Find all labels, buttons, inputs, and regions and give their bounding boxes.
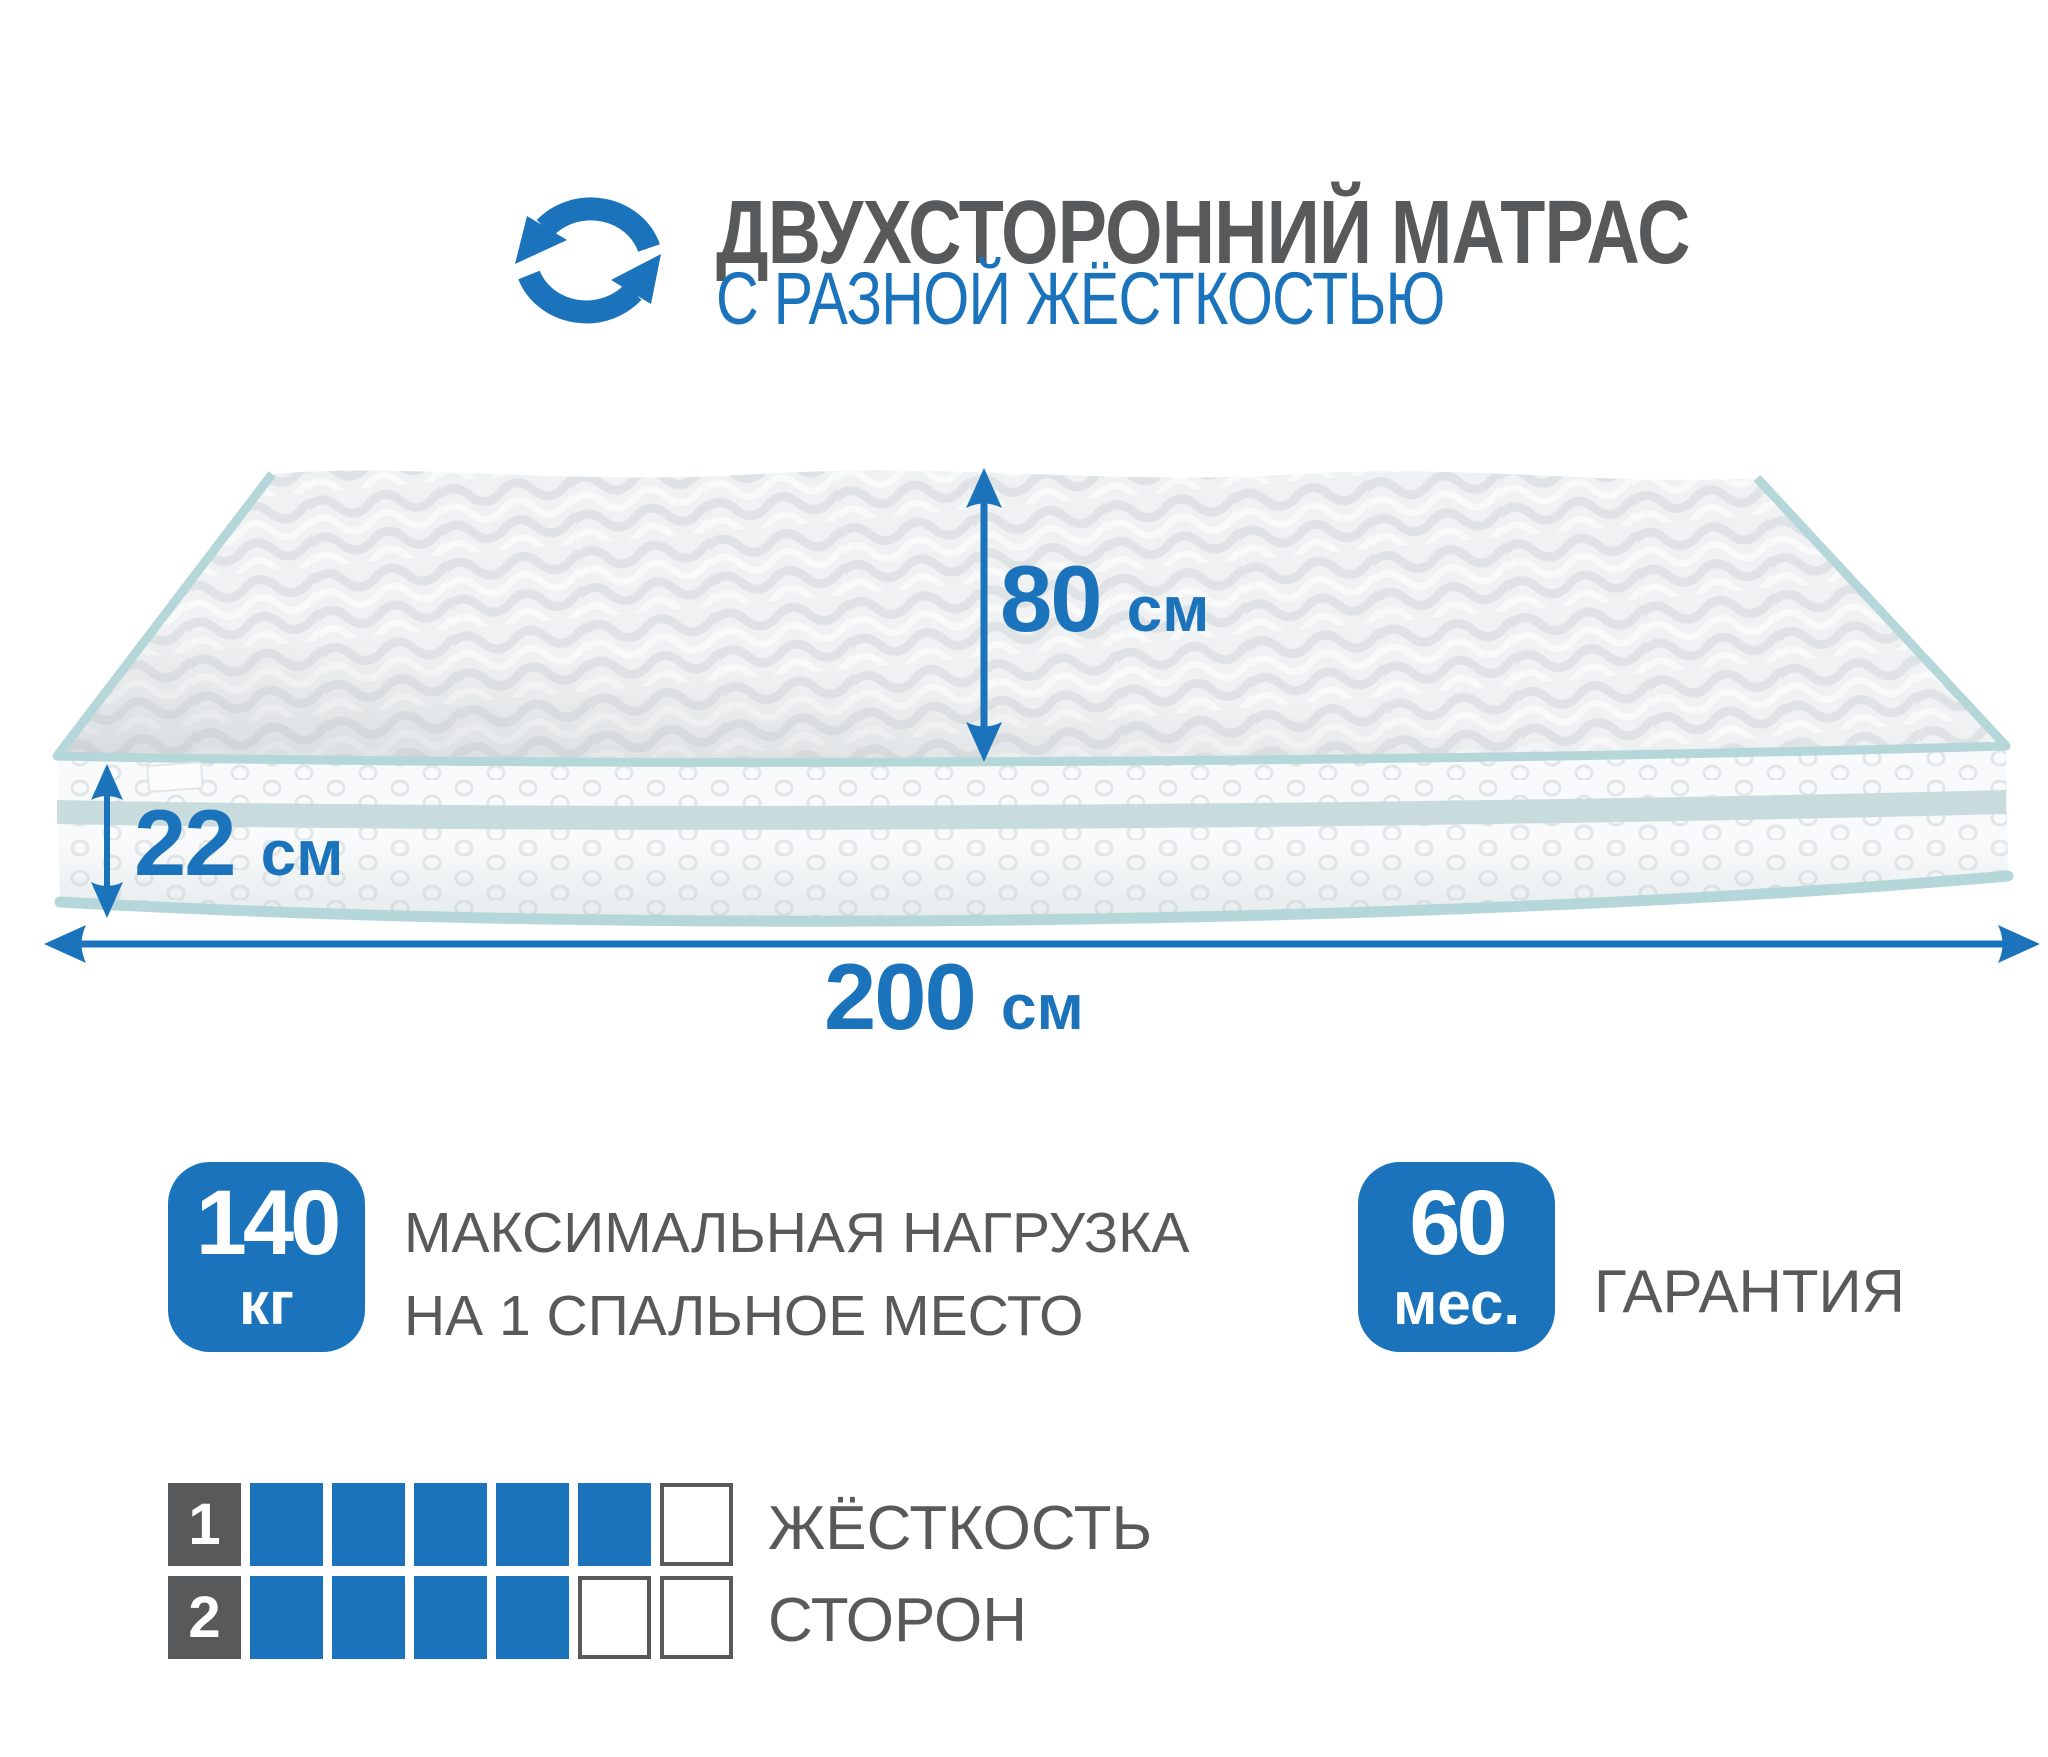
firmness-cell-filled (332, 1483, 405, 1566)
max-load-label: МАКСИМАЛЬНАЯ НАГРУЗКА НА 1 СПАЛЬНОЕ МЕСТ… (404, 1192, 1189, 1357)
firmness-cell-filled (250, 1576, 323, 1659)
firmness-cell-filled (332, 1576, 405, 1659)
mattress-side (57, 746, 2008, 921)
mattress-infographic: ДВУХСТОРОННИЙ МАТРАС С РАЗНОЙ ЖЁСТКОСТЬЮ (0, 0, 2048, 1757)
warranty-value: 60 (1409, 1180, 1503, 1267)
firmness-row-side-2: 2 (168, 1576, 733, 1659)
firmness-row-side-1: 1 (168, 1483, 733, 1566)
firmness-cell-empty (660, 1576, 733, 1659)
firmness-label-line2: СТОРОН (768, 1590, 1027, 1652)
max-load-label-line2: НА 1 СПАЛЬНОЕ МЕСТО (404, 1275, 1189, 1358)
sleeping-width-value: 80 (1000, 552, 1101, 646)
dimension-label-mattress-length: 200 см (824, 950, 1084, 1044)
warranty-label: ГАРАНТИЯ (1594, 1248, 1905, 1335)
firmness-cell-filled (496, 1576, 569, 1659)
max-load-value: 140 (196, 1180, 338, 1267)
firmness-side-1-label: 1 (168, 1483, 241, 1566)
firmness-label-line1: ЖЁСТКОСТЬ (768, 1498, 1152, 1560)
mattress-length-value: 200 (824, 950, 975, 1044)
sleeping-width-unit: см (1127, 577, 1210, 641)
firmness-side-2-label: 2 (168, 1576, 241, 1659)
firmness-cell-filled (414, 1483, 487, 1566)
max-load-unit: кг (239, 1274, 294, 1334)
warranty-badge: 60 мес. (1358, 1162, 1555, 1352)
firmness-cell-empty (660, 1483, 733, 1566)
firmness-cell-filled (250, 1483, 323, 1566)
firmness-cell-filled (578, 1483, 651, 1566)
firmness-scale: 1 2 (168, 1483, 733, 1659)
mattress-height-unit: см (261, 821, 344, 885)
mattress-height-value: 22 (134, 796, 235, 890)
warranty-unit: мес. (1393, 1274, 1520, 1334)
dimension-label-sleeping-width: 80 см (1000, 552, 1210, 646)
firmness-cell-empty (578, 1576, 651, 1659)
max-load-label-line1: МАКСИМАЛЬНАЯ НАГРУЗКА (404, 1192, 1189, 1275)
mattress-tag (147, 762, 203, 792)
mattress-length-unit: см (1001, 975, 1084, 1039)
firmness-cell-filled (496, 1483, 569, 1566)
max-load-badge: 140 кг (168, 1162, 365, 1352)
firmness-cell-filled (414, 1576, 487, 1659)
dimension-label-mattress-height: 22 см (134, 796, 344, 890)
